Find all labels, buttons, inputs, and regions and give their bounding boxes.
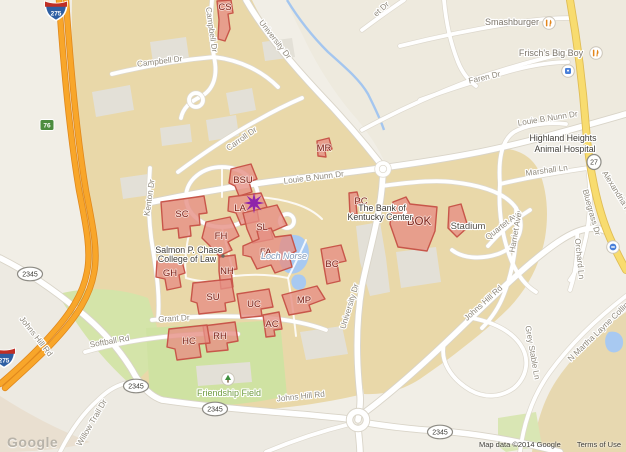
svg-text:2345: 2345 [22,272,38,279]
label-nh: NH [220,266,234,277]
label-bc: BC [325,259,338,270]
poi-friendship-field[interactable]: Friendship Field [197,388,261,398]
label-bsu: BSU [233,175,253,186]
poi-frischs-big-boy[interactable]: Frisch's Big Boy [519,48,584,58]
poi-chase-law-2[interactable]: College of Law [158,254,217,264]
route-2345-shield: 2345 [124,379,149,393]
label-sl: SL [256,222,268,233]
terms-of-use-link[interactable]: Terms of Use [577,440,621,449]
label-su: SU [206,292,219,303]
label-rh: RH [213,331,227,342]
label-hc: HC [182,336,196,347]
label-cs: CS [218,2,231,13]
poi-smashburger[interactable]: Smashburger [485,17,539,27]
restaurant-icon[interactable] [590,47,603,60]
svg-text:275: 275 [0,358,10,365]
svg-text:2345: 2345 [128,384,144,391]
label-mp: MP [297,295,311,306]
label-sc: SC [175,209,188,220]
svg-text:76: 76 [43,123,51,130]
attribution-bar: Map data ©2014 GoogleTerms of Use [479,440,621,449]
svg-text:2345: 2345 [207,407,223,414]
poi-animal-hospital-1[interactable]: Highland Heights [530,133,598,143]
map-data-text: Map data ©2014 Google [479,440,561,449]
poi-animal-hospital-2[interactable]: Animal Hospital [534,144,595,154]
poi-bank-of-kentucky-2[interactable]: Kentucky Center [347,212,412,222]
route-2345-shield: 2345 [428,425,453,439]
us-27-shield: 27 [587,155,601,170]
label-stadium: Stadium [451,221,486,232]
purple-star-marker[interactable] [244,193,265,214]
google-watermark[interactable]: Google [7,434,58,450]
svg-text:2345: 2345 [432,430,448,437]
label-ac: AC [265,319,278,330]
route-2345-shield: 2345 [203,402,228,416]
svg-text:275: 275 [51,11,62,18]
label-grant-dr: Grant Dr [158,313,190,324]
label-mr: MR [317,143,332,154]
label-uc: UC [247,299,261,310]
blue-poi-icon[interactable] [562,65,575,78]
label-la: LA [234,203,246,214]
map-canvas[interactable]: University Dr University Dr Campbell Dr … [0,0,626,452]
loch-norse-pond-lower [291,274,306,289]
restaurant-icon[interactable] [543,17,556,30]
mile-marker-76: 76 [40,120,54,131]
label-gh: GH [163,268,177,279]
label-loch-norse: Loch Norse [261,251,307,261]
svg-text:27: 27 [590,160,598,167]
tree-icon[interactable] [222,373,235,386]
lodging-icon[interactable] [607,241,620,254]
route-2345-shield: 2345 [18,267,43,281]
label-fh: FH [215,231,228,242]
